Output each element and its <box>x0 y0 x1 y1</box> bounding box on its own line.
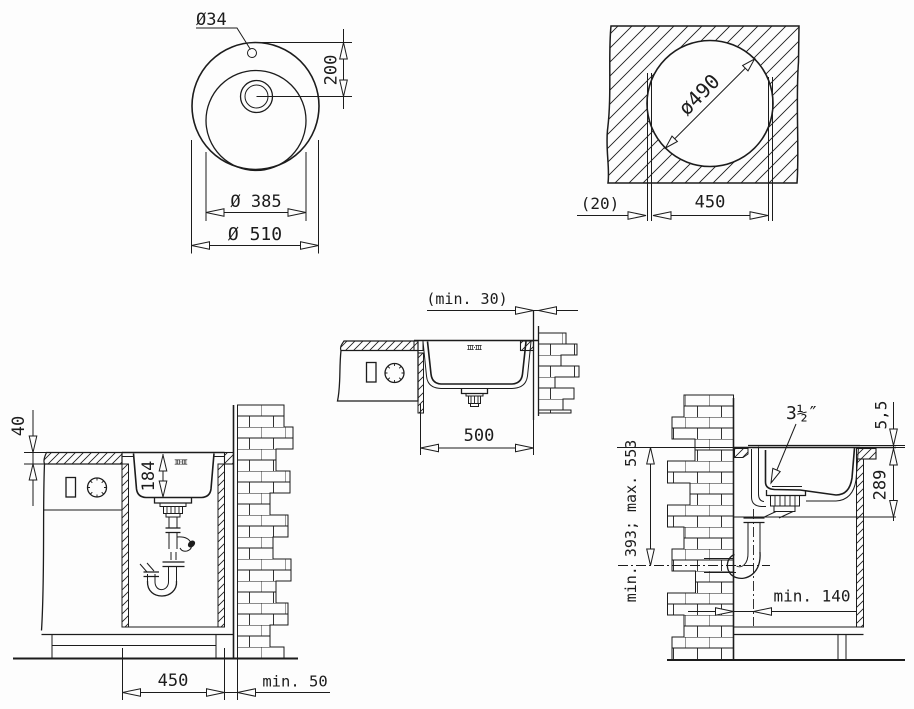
dim-cabinet-width-and-gap: 450 min. 50 <box>123 648 331 700</box>
dim-label-min393-max553: min. 393; max. 553 <box>622 440 640 603</box>
drain-pipe-and-trap <box>140 517 196 596</box>
bowl-outer-wall <box>806 448 859 502</box>
trap-outer-bend <box>147 581 176 596</box>
dim-label-tap-hole: Ø34 <box>196 10 227 30</box>
dim-label-min30: (min. 30) <box>426 290 507 308</box>
dim-bowl-diameter: Ø 385 <box>206 152 306 221</box>
brick-wall <box>668 395 734 660</box>
sink-technical-drawing-page: Ø34 200 Ø 385 Ø 510 <box>0 0 914 709</box>
leader-waste-size: 3½″ <box>771 403 819 483</box>
dim-label-3-5-inch: 3½″ <box>786 403 819 424</box>
dim-unit-width: 500 <box>421 404 534 455</box>
dim-label-20: (20) <box>581 194 620 213</box>
dim-label-385: Ø 385 <box>230 192 281 212</box>
worktop-piece-right <box>857 449 877 460</box>
dim-label-184: 184 <box>139 461 159 492</box>
dim-label-500: 500 <box>464 426 495 446</box>
sink-rim-circle <box>192 43 319 170</box>
worktop-strip <box>44 453 122 465</box>
wall-face-lines <box>534 310 539 420</box>
dim-label-40: 40 <box>9 416 29 436</box>
dim-label-450-cabinet: 450 <box>158 671 189 691</box>
leader-line <box>196 28 251 50</box>
dim-bowl-depth: 184 <box>139 454 167 497</box>
overflow-tube-inner <box>759 447 765 502</box>
worktop-piece-right <box>225 453 234 465</box>
strainer <box>462 389 488 407</box>
worktop-piece-right <box>521 341 534 351</box>
overflow-mark: III·III <box>467 344 483 352</box>
dim-label-510: Ø 510 <box>228 224 282 245</box>
dim-drain-height: min. 393; max. 553 <box>622 440 654 603</box>
dim-cutout-bottom: (20) 450 <box>577 193 768 220</box>
appliance-left-edge <box>42 464 45 631</box>
dim-label-200: 200 <box>322 55 342 86</box>
dim-label-5-5: 5,5 <box>872 401 891 430</box>
dim-rim-height-and-depth: 5,5 289 <box>734 401 906 521</box>
appliance-front <box>338 351 419 402</box>
cabinet-panel-right <box>218 464 225 627</box>
trap-inner-bend <box>155 581 169 590</box>
view-front-section: III·III (min. 30) 500 <box>338 290 580 455</box>
overflow-mark: III·III <box>174 459 188 467</box>
view-drain-section: min. 393; max. 553 5,5 289 3½″ min. 140 <box>617 395 905 660</box>
tap-hole-circle <box>248 49 257 58</box>
appliance-handle <box>66 478 76 498</box>
view-plan-round-sink: Ø34 200 Ø 385 Ø 510 <box>192 10 353 254</box>
plinth-legs <box>52 635 216 659</box>
rim-clamp-left <box>735 449 749 458</box>
pipe-break-dashes <box>171 552 176 560</box>
view-worktop-cutout: ø490 (20) 450 <box>577 26 799 221</box>
appliance-handle <box>367 363 377 383</box>
dim-wall-clearance: (min. 30) <box>426 290 578 314</box>
dim-label-450-cutout: 450 <box>695 193 726 213</box>
view-cabinet-section: 40 III·III 184 <box>9 405 330 700</box>
technical-drawing-canvas: Ø34 200 Ø 385 Ø 510 <box>0 0 914 709</box>
worktop-strip <box>341 341 418 351</box>
dim-label-289: 289 <box>871 470 891 501</box>
cabinet-panel-right <box>857 459 864 627</box>
dim-label-min50: min. 50 <box>262 673 327 691</box>
cabinet-panel-left <box>122 464 129 627</box>
brick-wall <box>238 405 294 659</box>
strainer <box>155 498 192 518</box>
brick-wall <box>539 333 580 413</box>
dim-label-min140: min. 140 <box>773 587 850 606</box>
appliance-knob <box>88 478 107 497</box>
cabinet-leg <box>838 635 846 661</box>
appliance-knob <box>385 364 404 383</box>
trap-inner-bend <box>737 552 749 567</box>
